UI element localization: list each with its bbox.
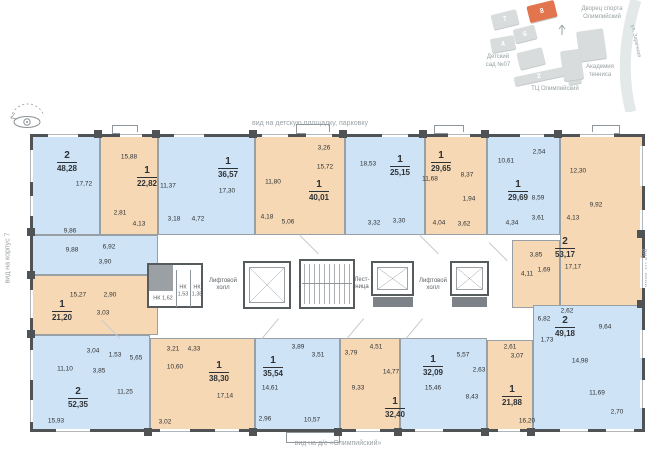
room-area-label: 11,10 [57,366,73,373]
room-area-label: 2,62 [561,308,574,315]
lift-hall-right-label: Лифтовой холл [419,278,447,292]
apartment-label-35-54[interactable]: 135,54 [263,356,283,378]
door-swing-line [489,242,508,261]
view-label-left: вид на корпус 7 [5,233,12,284]
room-area-label: 4,04 [433,220,446,227]
apartment-label-29-65[interactable]: 129,65 [431,151,451,173]
apartment-label-32-40[interactable]: 132,40 [385,397,405,419]
stairs-hatch [304,264,350,304]
room-area-label: 9,33 [352,385,365,392]
room-area-label: 3,30 [393,218,406,225]
window [498,429,520,434]
window [56,429,90,434]
room-area-label: 15,72 [317,164,333,171]
apartment-label-29-69[interactable]: 129,69 [508,180,528,202]
room-area-label: 16,20 [519,418,535,425]
room-area-label: 3,79 [345,350,358,357]
apartment-label-40-01[interactable]: 140,01 [309,180,329,202]
apartment-label-48-28[interactable]: 248,28 [57,151,77,173]
room-area-label: 17,14 [217,393,233,400]
room-area-label: 8,43 [466,394,479,401]
room-area-label: 3,85 [530,252,543,259]
room-area-label: 2,54 [533,149,546,156]
elevator-shaft-x-icon [249,267,285,303]
apartment-label-21-20[interactable]: 121,20 [52,300,72,322]
room-area-label: 2,90 [104,292,117,299]
room-area-label: 10,60 [167,364,183,371]
window [262,132,288,137]
room-area-label: 17,30 [219,188,235,195]
room-area-label: 11,69 [589,390,605,397]
view-label-bottom: вид на д/с «Олимпийский» [295,440,382,447]
window [28,150,33,182]
room-area-label: 14,77 [383,369,399,376]
room-area-label: 10,61 [498,158,514,165]
room-area-label: 3,62 [458,221,471,228]
window [640,258,645,288]
room-area-label: 11,37 [160,183,176,190]
apartment-block-49-18[interactable] [533,305,645,432]
room-area-label: 2,61 [504,344,517,351]
window [640,210,645,230]
wall-mass [373,297,413,307]
room-area-label: 9,92 [590,202,603,209]
apartment-block-25-15[interactable] [345,134,425,235]
room-area-label: 3,51 [312,352,325,359]
window [356,429,380,434]
room-area-label: 15,46 [425,385,441,392]
room-area-label: 17,17 [565,264,581,271]
room-area-label: 4,18 [261,214,274,221]
room-area-label: 3,85 [93,368,106,375]
wall-pier [394,428,402,436]
window [560,429,588,434]
room-area-label: 15,93 [48,418,64,425]
room-area-label: 3,07 [511,353,524,360]
apartment-label-53-17[interactable]: 253,17 [555,237,575,259]
room-area-label: 2,96 [259,416,272,423]
elevator-shaft-x-icon [456,267,483,290]
window [48,132,78,137]
elevator-shaft-x-icon [377,267,408,290]
door-swing-line [300,235,319,254]
wall-mass [452,297,487,307]
apartment-label-38-30[interactable]: 138,30 [209,361,229,383]
window [120,132,142,137]
apartment-label-32-09[interactable]: 132,09 [423,355,443,377]
room-area-label: 11,68 [422,176,438,183]
window [640,146,645,186]
window [215,429,239,434]
sports-palace-label: Дворец спорта Олимпийский [570,6,634,21]
window [28,350,33,380]
room-area-label: 3,32 [368,220,381,227]
room-area-label: 8,37 [461,172,474,179]
room-area-label: 5,57 [457,352,470,359]
apartment-block-32-09[interactable] [400,338,487,432]
room-area-label: 14,61 [262,385,278,392]
window [640,380,645,408]
site-mini-map: ул. Заречная 7 8 6 4 2 Дворец спорта Оли… [478,0,652,112]
room-area-label: 9,86 [64,228,77,235]
view-label-top: вид на детскую площадку, парковку [252,120,368,127]
room-area-label: 8,59 [532,195,545,202]
elevator-shaft [371,261,414,296]
room-area-label: 3,26 [318,145,331,152]
room-area-label: 3,61 [532,215,545,222]
tennis-academy-label: Академия тенниса [578,64,622,79]
room-area-label: 17,72 [76,181,92,188]
room-area-label: 4,72 [192,216,205,223]
window [174,132,204,137]
door-swing-line [406,318,423,339]
room-area-label: 3,90 [99,259,112,266]
room-area-label: 3,03 [97,310,110,317]
room-area-label: 2,70 [611,409,624,416]
room-area-label: 14,98 [572,358,588,365]
wall-pier [481,130,489,138]
apartment-block-53-17-l[interactable] [512,240,560,308]
stairs-divider [302,283,352,284]
door-swing-line [347,318,364,339]
storage-label: НК 1,38 [192,284,203,297]
window [580,132,614,137]
room-area-label: 1,53 [109,352,122,359]
room-area-label: 9,64 [599,324,612,331]
room-area-label: 3,21 [167,346,180,353]
floor-plan-page: вид на детскую площадку, парковку вид на… [0,0,652,458]
window [448,132,470,137]
wall-pier [249,428,257,436]
north-arrow-icon [556,22,568,36]
room-area-label: 18,53 [360,161,376,168]
window [28,290,33,318]
window [640,330,645,358]
room-area-label: 6,92 [103,244,116,251]
apartment-label-52-35[interactable]: 252,35 [68,387,88,409]
apartment-label-21-88[interactable]: 121,88 [502,385,522,407]
room-area-label: 4,33 [188,346,201,353]
room-area-label: 4,13 [567,215,580,222]
room-area-label: 4,11 [521,271,533,278]
wall-pier [27,330,35,338]
room-area-label: 3,18 [168,216,181,223]
wall-pier [144,428,152,436]
window [28,196,33,216]
window [28,400,33,422]
room-area-label: 4,51 [370,344,383,351]
room-area-label: 1,69 [538,267,551,274]
view-direction-eye-icon [4,90,50,139]
room-area-label: 1,73 [541,337,554,344]
room-area-label: 4,34 [506,220,519,227]
storage-label: НК 1,62 [153,296,172,303]
wall-pier [419,130,427,138]
window [606,429,634,434]
window [520,132,544,137]
apartment-block-48-28-l[interactable] [30,235,158,275]
storage-label: НК 1,53 [178,284,189,297]
mall-label: ТЦ Олимпийский [520,86,590,94]
wall-pier [249,130,257,138]
elevator-shaft [450,261,489,296]
lift-hall-left-label: Лифтовой холл [209,278,237,292]
room-area-label: 4,13 [133,221,146,228]
wall-pier [637,300,645,308]
staircase-block [299,259,355,309]
wall-pier [527,428,535,436]
wall-pier [554,130,562,138]
wall-pier [94,130,102,138]
room-area-label: 5,65 [130,355,143,362]
wall-pier [334,428,342,436]
apartment-label-22-82[interactable]: 122,82 [137,166,157,188]
room-area-label: 12,30 [570,168,586,175]
elevator-shaft [243,261,291,309]
room-area-label: 11,80 [265,179,281,186]
window [415,429,443,434]
window [382,132,408,137]
eye-compass-icon [4,90,50,134]
room-area-label: 11,25 [117,389,133,396]
room-area-label: 3,89 [292,344,305,351]
wall-pier [27,228,35,236]
room-area-label: 9,88 [66,247,79,254]
apartment-block-21-20[interactable] [30,275,158,335]
staircase-label: Лест- ница [354,277,369,291]
room-area-label: 15,27 [70,292,86,299]
door-swing-line [262,318,279,339]
room-area-label: 2,81 [114,210,127,217]
apartment-label-36-57[interactable]: 136,57 [218,157,238,179]
door-swing-line [420,235,439,254]
kindergarten-label: Детский сад №07 [478,54,518,69]
wall-mass [149,265,173,291]
apartment-label-49-18[interactable]: 249,18 [555,316,575,338]
room-area-label: 10,57 [304,417,320,424]
window [160,429,190,434]
wall-pier [27,271,35,279]
room-area-label: 3,04 [87,348,100,355]
apartment-label-25-15[interactable]: 125,15 [390,155,410,177]
wall-pier [152,130,160,138]
wall-pier [637,230,645,238]
room-area-label: 2,63 [473,367,486,374]
room-area-label: 1,94 [463,196,476,203]
wall-pier [481,428,489,436]
room-area-label: 5,06 [282,219,295,226]
room-area-label: 3,02 [159,419,172,426]
window [306,132,332,137]
room-area-label: 15,88 [121,154,137,161]
wall-pier [339,130,347,138]
room-area-label: 6,82 [538,316,551,323]
